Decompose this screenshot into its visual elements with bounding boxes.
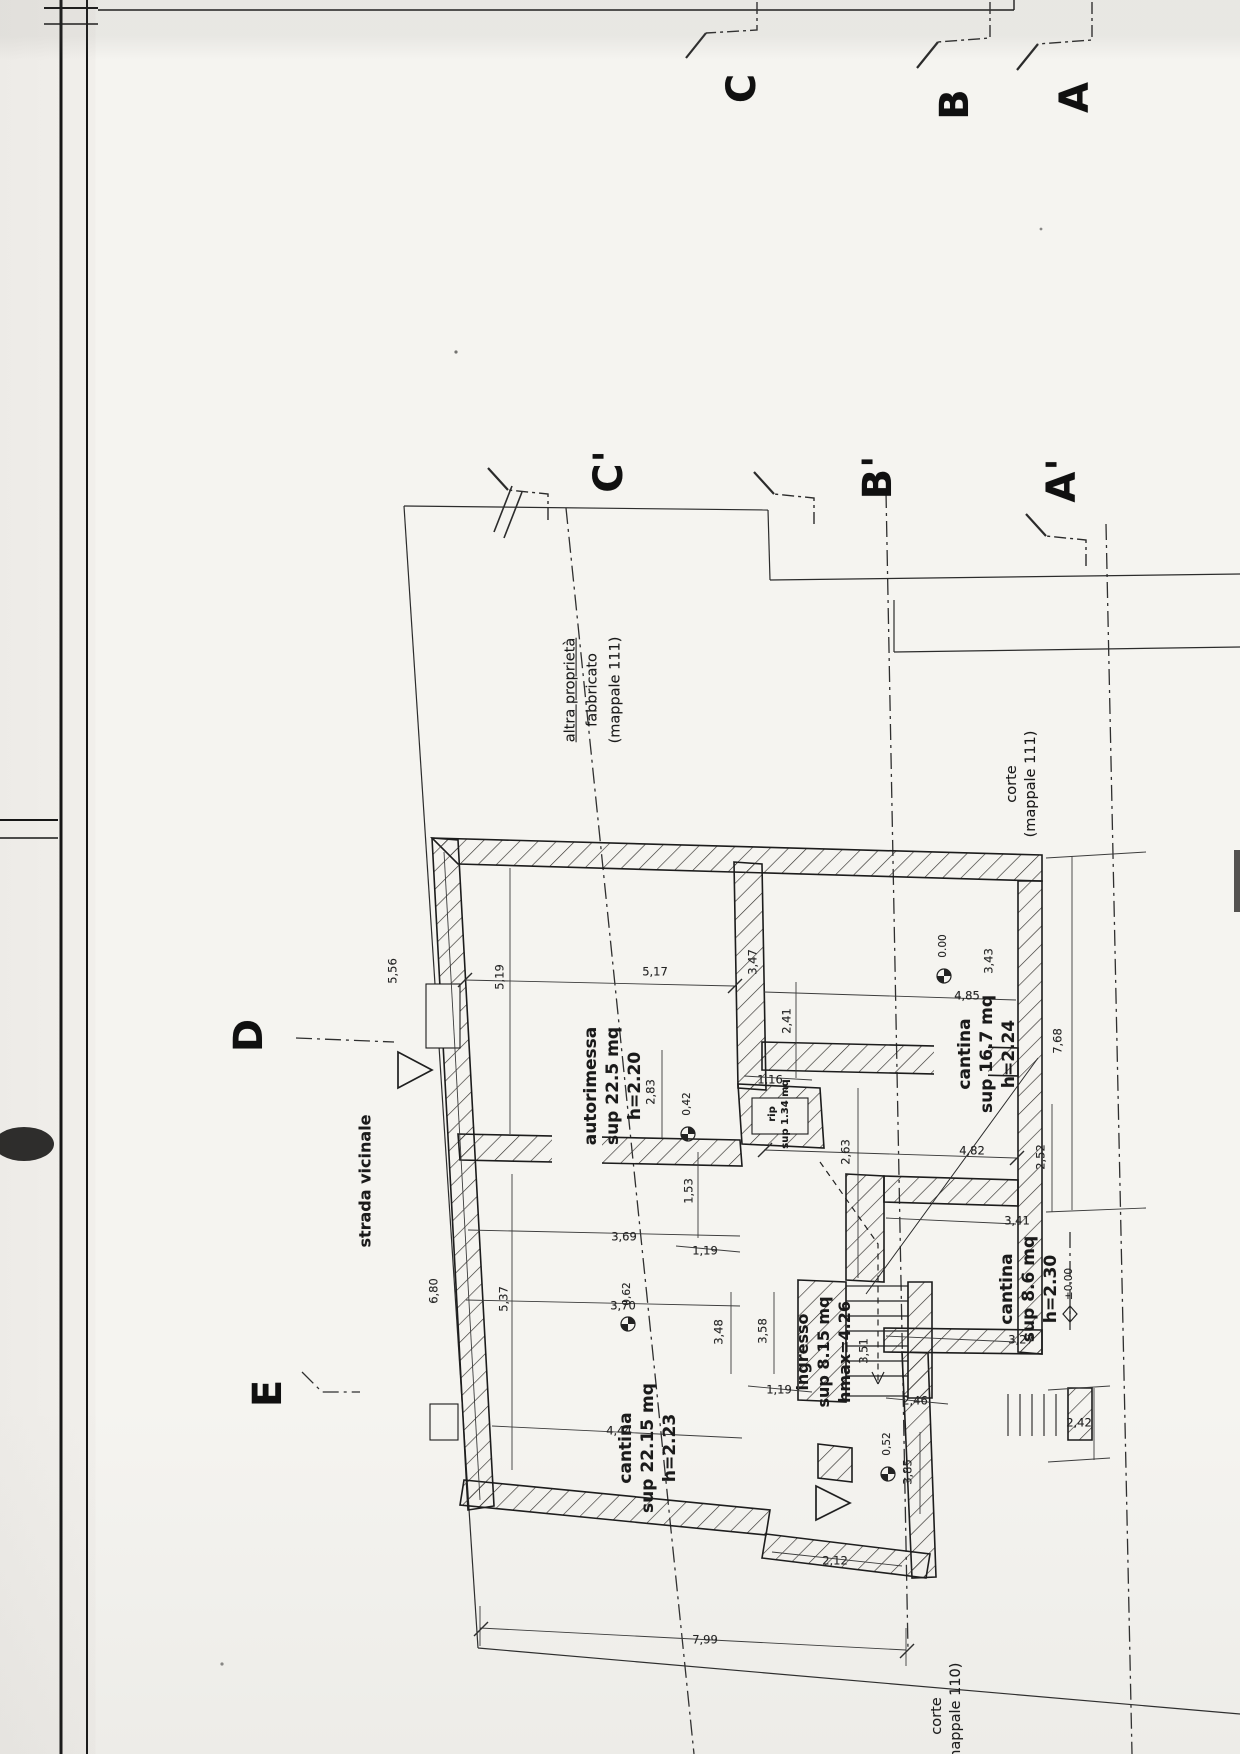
dimension-text: 7,68: [1051, 1028, 1066, 1054]
triangle-marker-e: [816, 1486, 850, 1520]
dimension-text: 5,19: [493, 964, 508, 990]
dimension-text: 3,69: [611, 1230, 637, 1245]
room-label-cantina-8-6: cantina sup 8.6 mq h=2.30: [996, 1236, 1062, 1342]
dimension-text: 3,58: [756, 1318, 771, 1344]
level-text: 0,52: [881, 1432, 895, 1455]
opening-left-wall-1: [426, 984, 460, 1048]
dimension-text: 5,17: [642, 965, 668, 980]
dimension-text: 3,43: [982, 948, 997, 974]
section-letter-e: E: [242, 1379, 294, 1407]
dimension-text: 6,80: [427, 1278, 442, 1304]
section-arrows: [488, 2, 1092, 566]
room-label-ingresso: ingresso sup 8.15 mq hmax=4.26: [793, 1296, 855, 1407]
section-letter-a-prime: A': [1036, 457, 1088, 502]
dimension-text: 5,56: [386, 958, 401, 984]
dimension-text: 3,48: [712, 1319, 727, 1345]
dimension-text: 2,52: [1034, 1144, 1049, 1170]
dimension-text: 2,83: [644, 1079, 659, 1105]
room-label-autorimessa: autorimessa sup 22.5 mq h=2.20: [580, 1027, 646, 1146]
label-altra-proprieta-line1: altra proprietà: [562, 638, 581, 742]
dimension-text: 3,27: [1008, 1333, 1034, 1348]
opening-left-wall-2: [430, 1404, 458, 1440]
dimension-text: 3,41: [1004, 1214, 1030, 1229]
room-label-cantina-16-7: cantina sup 16.7 mq h=2.24: [954, 995, 1020, 1113]
wall-pier-ingresso: [818, 1444, 852, 1482]
label-altra-proprieta-line2: fabbricato: [584, 653, 603, 727]
dimension-text: 2,12: [822, 1554, 848, 1569]
section-trace-lines: [296, 492, 1132, 1754]
level-text: 0,62: [621, 1282, 635, 1305]
level-text: ±0.00: [1063, 1268, 1077, 1300]
dimension-text: 3,47: [746, 949, 761, 975]
wall-cantina86-top: [884, 1176, 1018, 1206]
dimension-text: 5,37: [497, 1286, 512, 1312]
dimension-text: 3,51: [857, 1338, 872, 1364]
section-letter-b: B: [929, 88, 981, 120]
room-label-rip: rip sup 1.34 mq: [766, 1079, 792, 1148]
dimension-text: 1,16: [757, 1073, 783, 1088]
scanned-floor-plan-page: CBAC'B'A'DEautorimessa sup 22.5 mq h=2.2…: [0, 0, 1240, 1754]
section-letter-a: A: [1049, 81, 1101, 113]
wall-external-stair-side: [1068, 1388, 1092, 1440]
section-letter-d: D: [223, 1018, 275, 1052]
dimension-text: 3,85: [901, 1459, 916, 1485]
dimension-text: 2,63: [839, 1139, 854, 1165]
section-letter-b-prime: B': [852, 455, 904, 500]
wall-stairs-right: [908, 1282, 932, 1398]
level-text: 0,42: [681, 1092, 695, 1115]
label-corte-mappale-110: corte (mappale 110): [928, 1663, 966, 1754]
external-stair: [1008, 1394, 1056, 1436]
dimension-text: 1,53: [682, 1178, 697, 1204]
dimension-text: 7,99: [692, 1633, 718, 1648]
section-letter-c-prime: C': [583, 449, 635, 493]
dimension-text: 1,19: [692, 1244, 718, 1259]
level-text: 0.00: [937, 934, 951, 957]
dimension-text: 4,85: [954, 989, 980, 1004]
label-strada-vicinale: strada vicinale: [356, 1114, 377, 1247]
triangle-marker-d: [398, 1052, 432, 1088]
dimension-text: 2,46: [902, 1394, 928, 1409]
dimension-text: 2,42: [1066, 1416, 1092, 1431]
section-letter-c: C: [716, 73, 768, 103]
boundary-lines: [404, 486, 1240, 1714]
dimension-text: 1,19: [766, 1383, 792, 1398]
dimension-text: 2,41: [780, 1008, 795, 1034]
room-label-cantina-22-15: cantina sup 22.15 mq h=2.23: [615, 1383, 681, 1513]
dimension-text: 4,82: [959, 1144, 985, 1159]
label-altra-proprieta-line3: (mappale 111): [607, 637, 626, 744]
label-corte-mappale-111: corte (mappale 111): [1003, 731, 1041, 838]
dimension-text: 4,44: [606, 1424, 632, 1439]
